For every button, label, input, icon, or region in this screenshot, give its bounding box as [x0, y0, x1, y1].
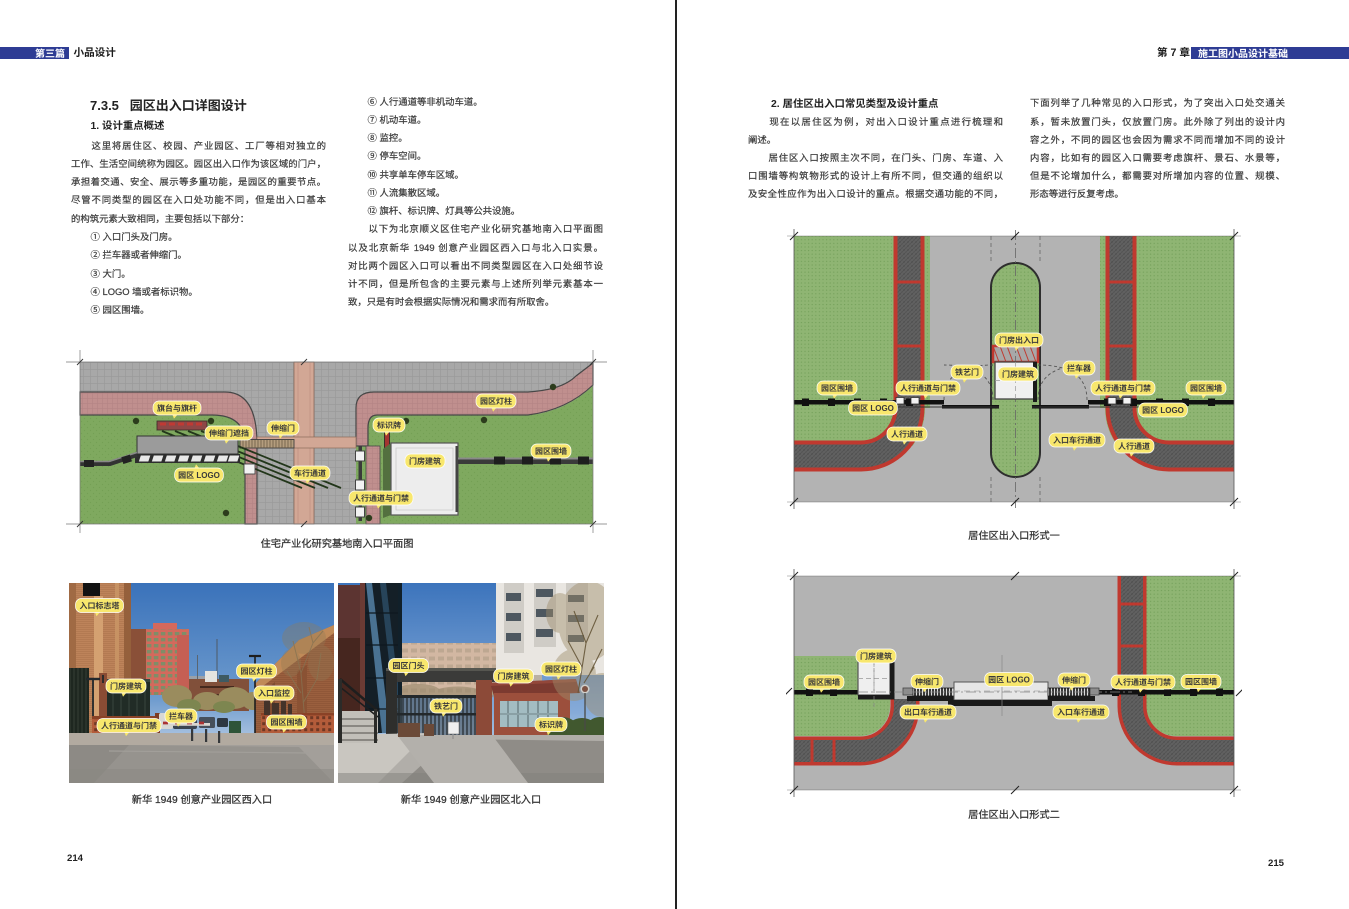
svg-text:园区灯柱: 园区灯柱 — [241, 666, 273, 677]
svg-text:园区 LOGO: 园区 LOGO — [988, 674, 1030, 685]
svg-text:园区围墙: 园区围墙 — [808, 677, 840, 688]
svg-text:门房建筑: 门房建筑 — [110, 681, 142, 692]
svg-text:园区围墙: 园区围墙 — [271, 717, 303, 728]
svg-text:门房建筑: 门房建筑 — [409, 456, 441, 467]
svg-text:标识牌: 标识牌 — [539, 719, 563, 730]
svg-text:门房建筑: 门房建筑 — [860, 651, 892, 662]
svg-text:拦车器: 拦车器 — [1067, 363, 1091, 374]
svg-text:园区 LOGO: 园区 LOGO — [1142, 405, 1184, 416]
svg-text:园区 LOGO: 园区 LOGO — [852, 403, 894, 414]
svg-text:园区门头: 园区门头 — [393, 660, 425, 671]
svg-text:伸缩门: 伸缩门 — [1062, 675, 1086, 686]
svg-text:标识牌: 标识牌 — [377, 420, 401, 431]
svg-text:人行通道与门禁: 人行通道与门禁 — [353, 493, 409, 504]
svg-text:入口监控: 入口监控 — [258, 688, 290, 699]
svg-text:园区围墙: 园区围墙 — [535, 446, 567, 457]
svg-text:伸缩门遮挡: 伸缩门遮挡 — [209, 428, 249, 439]
svg-text:园区围墙: 园区围墙 — [1190, 383, 1222, 394]
svg-text:门房建筑: 门房建筑 — [498, 671, 530, 682]
svg-text:入口车行通道: 入口车行通道 — [1053, 435, 1101, 446]
svg-text:铁艺门: 铁艺门 — [434, 701, 458, 712]
svg-text:人行通道: 人行通道 — [891, 429, 923, 440]
svg-text:伸缩门: 伸缩门 — [915, 676, 939, 687]
svg-text:园区围墙: 园区围墙 — [821, 383, 853, 394]
svg-text:铁艺门: 铁艺门 — [955, 367, 979, 378]
svg-text:出口车行通道: 出口车行通道 — [904, 707, 952, 718]
svg-text:门房出入口: 门房出入口 — [999, 335, 1039, 346]
svg-text:园区灯柱: 园区灯柱 — [545, 664, 577, 675]
svg-text:人行通道与门禁: 人行通道与门禁 — [101, 720, 157, 731]
svg-text:入口车行通道: 入口车行通道 — [1057, 707, 1105, 718]
svg-text:园区围墙: 园区围墙 — [1185, 676, 1217, 687]
svg-text:旗台与旗杆: 旗台与旗杆 — [157, 403, 197, 414]
svg-text:人行通道与门禁: 人行通道与门禁 — [1095, 383, 1151, 394]
svg-text:人行通道与门禁: 人行通道与门禁 — [1115, 677, 1171, 688]
svg-text:人行通道与门禁: 人行通道与门禁 — [900, 383, 956, 394]
svg-text:伸缩门: 伸缩门 — [271, 423, 295, 434]
svg-text:车行通道: 车行通道 — [294, 468, 326, 479]
svg-text:门房建筑: 门房建筑 — [1002, 369, 1034, 380]
svg-text:拦车器: 拦车器 — [169, 711, 193, 722]
svg-text:入口标志塔: 入口标志塔 — [80, 600, 120, 611]
svg-text:园区灯柱: 园区灯柱 — [480, 396, 512, 407]
svg-text:园区 LOGO: 园区 LOGO — [178, 470, 220, 481]
svg-text:人行通道: 人行通道 — [1118, 441, 1150, 452]
